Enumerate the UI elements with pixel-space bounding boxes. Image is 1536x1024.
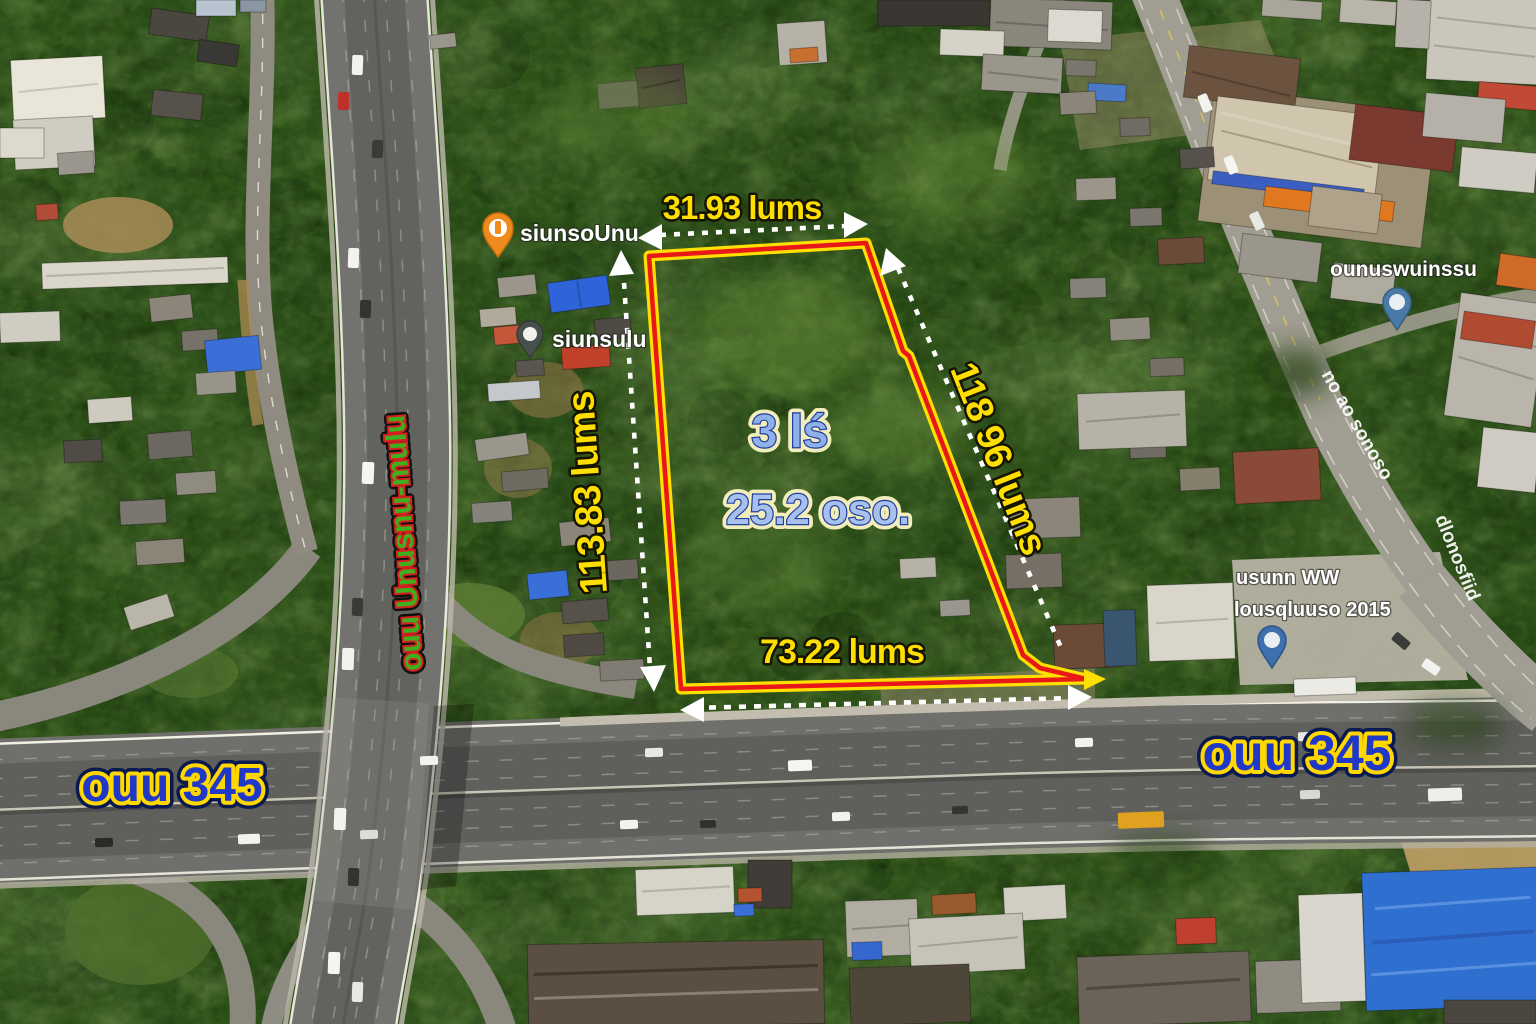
svg-text:ounuswuinssu: ounuswuinssu [1330,258,1477,281]
svg-text:3 lś: 3 lś [752,405,829,457]
svg-text:31.93 lums: 31.93 lums [663,189,822,226]
svg-text:usunn WW: usunn WW [1236,567,1339,589]
svg-text:73.22 lums: 73.22 lums [760,633,924,671]
svg-text:lousqluuso 2015: lousqluuso 2015 [1234,599,1391,621]
svg-text:ouu 345: ouu 345 [1203,725,1392,781]
svg-text:siunsoUnu: siunsoUnu [520,220,639,246]
svg-text:ouu 345: ouu 345 [81,759,262,812]
svg-text:siunsulu: siunsulu [552,326,647,352]
svg-text:25.2 oso.: 25.2 oso. [726,486,910,534]
